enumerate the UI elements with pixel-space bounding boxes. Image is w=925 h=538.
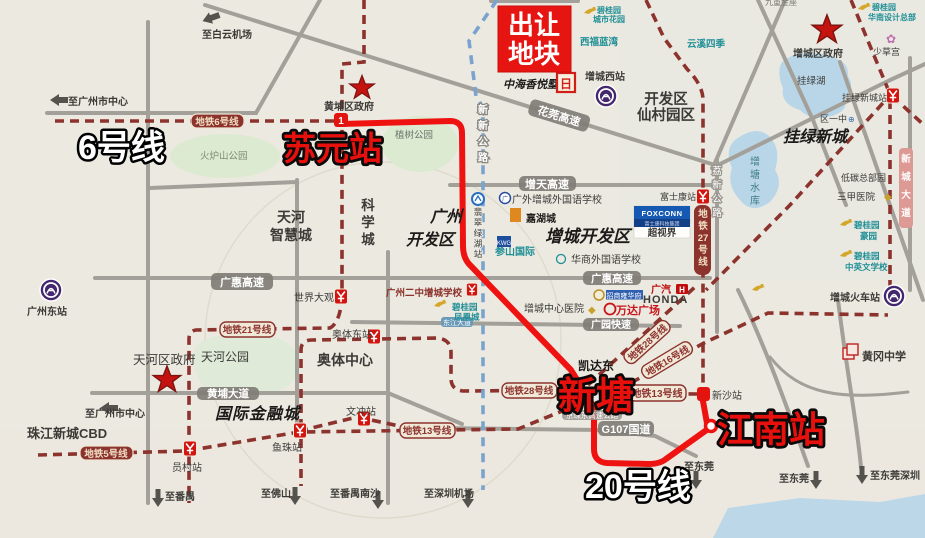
svg-text:挂绿新城: 挂绿新城 bbox=[783, 128, 850, 146]
svg-text:天河区政府: 天河区政府 bbox=[133, 352, 196, 367]
svg-text:地铁28号线: 地铁28号线 bbox=[505, 385, 554, 397]
svg-text:西福蓝湾: 西福蓝湾 bbox=[580, 36, 619, 48]
svg-text:碧桂园: 碧桂园 bbox=[853, 220, 880, 230]
svg-text:至白云机场: 至白云机场 bbox=[202, 28, 252, 41]
svg-text:嘉湖城: 嘉湖城 bbox=[525, 212, 556, 225]
svg-text:KWG: KWG bbox=[497, 241, 512, 247]
svg-text:增城火车站: 增城火车站 bbox=[830, 291, 880, 304]
svg-text:地铁21号线: 地铁21号线 bbox=[223, 324, 272, 336]
svg-text:至番禺: 至番禺 bbox=[165, 490, 195, 503]
svg-text:中英文学校: 中英文学校 bbox=[845, 262, 888, 272]
svg-text:区一中: 区一中 bbox=[820, 113, 847, 124]
svg-text:碧桂园: 碧桂园 bbox=[596, 5, 621, 15]
svg-text:黄埔大道: 黄埔大道 bbox=[207, 387, 249, 400]
svg-text:地铁5号线: 地铁5号线 bbox=[84, 448, 128, 460]
svg-text:中海香悦墅: 中海香悦墅 bbox=[503, 78, 560, 91]
svg-text:1: 1 bbox=[338, 116, 344, 127]
svg-text:广州二中增城学校: 广州二中增城学校 bbox=[386, 287, 463, 299]
svg-text:世界大观: 世界大观 bbox=[294, 291, 334, 304]
svg-text:华南设计总部: 华南设计总部 bbox=[868, 12, 916, 22]
svg-text:华商外国语学校: 华商外国语学校 bbox=[571, 253, 641, 266]
svg-text:天河公园: 天河公园 bbox=[201, 350, 249, 364]
svg-text:天河: 天河 bbox=[277, 209, 305, 225]
svg-text:增城中心医院: 增城中心医院 bbox=[524, 302, 584, 315]
svg-text:云溪四季: 云溪四季 bbox=[687, 38, 726, 50]
svg-text:万达广场: 万达广场 bbox=[615, 303, 660, 317]
svg-text:增天高速: 增天高速 bbox=[525, 177, 569, 191]
svg-text:奥体中心: 奥体中心 bbox=[317, 352, 373, 368]
svg-text:碧桂园: 碧桂园 bbox=[451, 302, 478, 312]
svg-text:广园快速: 广园快速 bbox=[591, 318, 631, 331]
svg-text:城市花园: 城市花园 bbox=[593, 14, 625, 24]
svg-text:开发区: 开发区 bbox=[406, 231, 457, 249]
svg-text:黄埔区政府: 黄埔区政府 bbox=[324, 100, 374, 113]
svg-text:◆: ◆ bbox=[588, 305, 596, 316]
svg-text:广外增城外国语学校: 广外增城外国语学校 bbox=[512, 193, 602, 206]
svg-text:20号线: 20号线 bbox=[585, 468, 691, 506]
svg-text:超视界: 超视界 bbox=[647, 227, 677, 239]
svg-text:广州东站: 广州东站 bbox=[27, 305, 67, 318]
svg-text:植树公园: 植树公园 bbox=[395, 129, 433, 141]
svg-text:苏元站: 苏元站 bbox=[283, 130, 382, 167]
svg-text:富士康站: 富士康站 bbox=[660, 191, 696, 202]
svg-text:增城西站: 增城西站 bbox=[585, 70, 625, 83]
svg-text:珠江新城CBD: 珠江新城CBD bbox=[27, 426, 107, 441]
svg-text:九重金座: 九重金座 bbox=[765, 0, 797, 7]
svg-text:增城区政府: 增城区政府 bbox=[793, 47, 843, 60]
svg-text:国际金融城: 国际金融城 bbox=[215, 405, 302, 423]
svg-text:鱼珠站: 鱼珠站 bbox=[272, 441, 302, 454]
svg-text:挂绿新城站: 挂绿新城站 bbox=[842, 92, 887, 103]
svg-text:至广州市中心: 至广州市中心 bbox=[85, 407, 145, 420]
svg-text:地铁13号线: 地铁13号线 bbox=[403, 425, 452, 437]
svg-text:豪园: 豪园 bbox=[860, 231, 877, 241]
svg-text:新沙站: 新沙站 bbox=[712, 389, 742, 402]
svg-text:智慧城: 智慧城 bbox=[269, 227, 312, 243]
svg-text:✿: ✿ bbox=[886, 32, 896, 46]
svg-text:奥体东站: 奥体东站 bbox=[332, 328, 372, 341]
svg-text:出让: 出让 bbox=[508, 10, 560, 40]
svg-text:地铁13号线: 地铁13号线 bbox=[631, 387, 682, 400]
svg-text:三甲医院: 三甲医院 bbox=[837, 191, 876, 203]
svg-text:凤凰城: 凤凰城 bbox=[454, 312, 480, 322]
svg-text:广惠高速: 广惠高速 bbox=[220, 275, 264, 289]
svg-text:凯达东: 凯达东 bbox=[578, 358, 614, 373]
svg-text:6号线: 6号线 bbox=[78, 129, 165, 167]
svg-text:挂绿湖: 挂绿湖 bbox=[797, 75, 826, 87]
svg-text:开发区: 开发区 bbox=[644, 90, 688, 108]
svg-text:火炉山公园: 火炉山公园 bbox=[200, 150, 248, 162]
svg-text:翡翠绿湖站: 翡翠绿湖站 bbox=[474, 207, 483, 259]
svg-text:◆: ◆ bbox=[884, 192, 892, 203]
svg-text:黄冈中学: 黄冈中学 bbox=[862, 349, 906, 363]
svg-text:至东莞深圳: 至东莞深圳 bbox=[870, 469, 920, 482]
svg-text:文冲站: 文冲站 bbox=[346, 405, 376, 418]
svg-text:科学城: 科学城 bbox=[361, 197, 375, 247]
svg-text:新塘: 新塘 bbox=[558, 376, 634, 418]
svg-text:广: 广 bbox=[502, 195, 508, 203]
svg-text:招商雍华府: 招商雍华府 bbox=[607, 291, 642, 300]
svg-text:广惠高速: 广惠高速 bbox=[591, 272, 633, 285]
svg-text:日: 日 bbox=[560, 77, 572, 91]
svg-text:地块: 地块 bbox=[508, 39, 560, 69]
svg-text:至佛山: 至佛山 bbox=[261, 487, 291, 500]
svg-text:至东莞: 至东莞 bbox=[779, 472, 809, 485]
svg-text:少草宫: 少草宫 bbox=[873, 46, 900, 57]
svg-text:员村站: 员村站 bbox=[172, 461, 202, 474]
svg-text:低碳总部园: 低碳总部园 bbox=[841, 172, 886, 183]
svg-text:地铁6号线: 地铁6号线 bbox=[195, 116, 239, 128]
svg-text:至番禺南沙: 至番禺南沙 bbox=[330, 487, 380, 500]
svg-text:G107国道: G107国道 bbox=[602, 422, 651, 436]
svg-text:⊕: ⊕ bbox=[848, 115, 855, 124]
svg-text:广州: 广州 bbox=[429, 208, 465, 226]
svg-text:至广州市中心: 至广州市中心 bbox=[68, 95, 128, 108]
svg-text:增城开发区: 增城开发区 bbox=[545, 227, 633, 246]
svg-text:碧桂园: 碧桂园 bbox=[871, 2, 896, 12]
svg-text:地铁27号线: 地铁27号线 bbox=[698, 208, 709, 268]
svg-text:江南站: 江南站 bbox=[717, 409, 825, 450]
svg-text:富士康科技集团: 富士康科技集团 bbox=[644, 221, 679, 228]
svg-text:仙村园区: 仙村园区 bbox=[637, 106, 695, 124]
svg-text:碧桂园: 碧桂园 bbox=[853, 251, 880, 261]
svg-text:至深圳机场: 至深圳机场 bbox=[424, 487, 474, 500]
svg-text:FOXCONN: FOXCONN bbox=[642, 209, 683, 218]
